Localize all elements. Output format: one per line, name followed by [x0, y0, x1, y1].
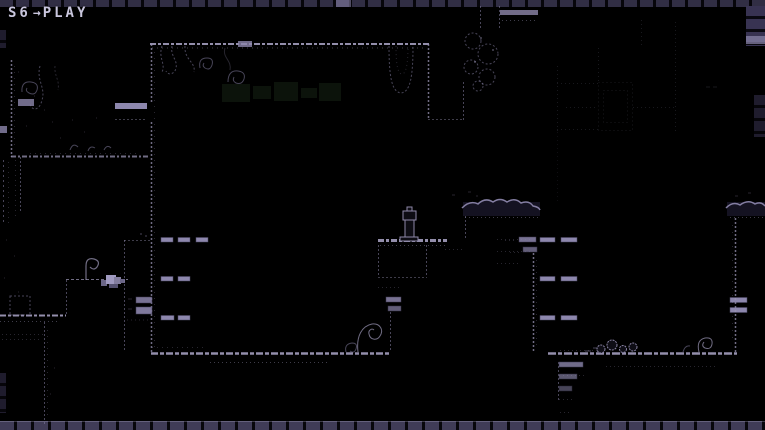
- left-room-outline: [4, 60, 149, 292]
- rocky-ledge-left: [452, 192, 540, 218]
- basement-stairs: [559, 362, 586, 413]
- hud-status: S6 → PLAY: [8, 5, 88, 21]
- ledge-with-lamp: [66, 259, 128, 316]
- hud-mode-label: PLAY: [43, 5, 89, 21]
- lower-left-platform: [0, 296, 66, 424]
- right-room-outline: [466, 216, 738, 367]
- floor-swirl-decoration: [346, 324, 382, 352]
- game-viewport[interactable]: S6 → PLAY: [0, 0, 765, 430]
- main-room-outline: [115, 41, 464, 363]
- hanging-curtain-decoration: [389, 46, 413, 93]
- lamp-post-curl: [86, 259, 98, 280]
- creature-sprite: [101, 275, 125, 288]
- top-shaft: [481, 6, 539, 30]
- center-platform: [378, 240, 530, 353]
- level-geometry: [0, 0, 765, 430]
- rubble-pile: [585, 340, 637, 353]
- chimney-shaft: [124, 234, 152, 352]
- right-room-swirl-decoration: [683, 338, 712, 352]
- left-room-vines-decoration: [18, 66, 111, 151]
- ceiling-vines-decoration: [161, 46, 245, 84]
- rocky-ledge-right: [726, 193, 765, 218]
- statue: [400, 207, 418, 241]
- background-maze-grid: [557, 20, 717, 203]
- foliage-cluster: [464, 33, 498, 91]
- hud-state-label: S6: [8, 5, 31, 21]
- arrow-right-icon: →: [33, 6, 41, 21]
